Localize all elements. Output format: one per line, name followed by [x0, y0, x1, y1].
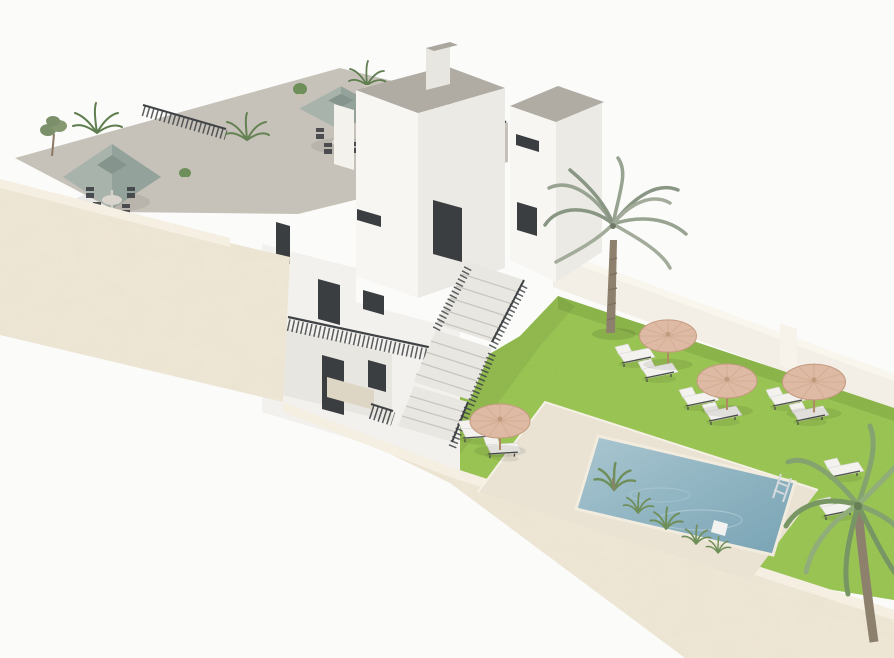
straw-umbrella — [470, 404, 530, 457]
scene-svg — [0, 0, 894, 658]
tower-main-left-face — [356, 90, 418, 298]
tower-window — [517, 202, 537, 236]
straw-umbrella — [783, 364, 846, 420]
render-canvas: Aerial 3D architectural render of a whit… — [0, 0, 894, 658]
terrace-pillar — [334, 104, 354, 170]
palm-crown-center — [610, 223, 616, 229]
palm-crown-center — [854, 502, 862, 510]
glass-door — [318, 279, 340, 325]
facade-window — [368, 360, 386, 392]
straw-umbrella — [697, 364, 757, 417]
terrace-table — [102, 195, 122, 205]
tower-right-left-face — [510, 106, 556, 282]
facade-window — [433, 200, 462, 262]
straw-umbrella — [640, 320, 697, 370]
wall-pillar — [780, 323, 797, 371]
mini-palm-trunk — [613, 478, 614, 490]
tower-main-right-face — [418, 88, 505, 298]
